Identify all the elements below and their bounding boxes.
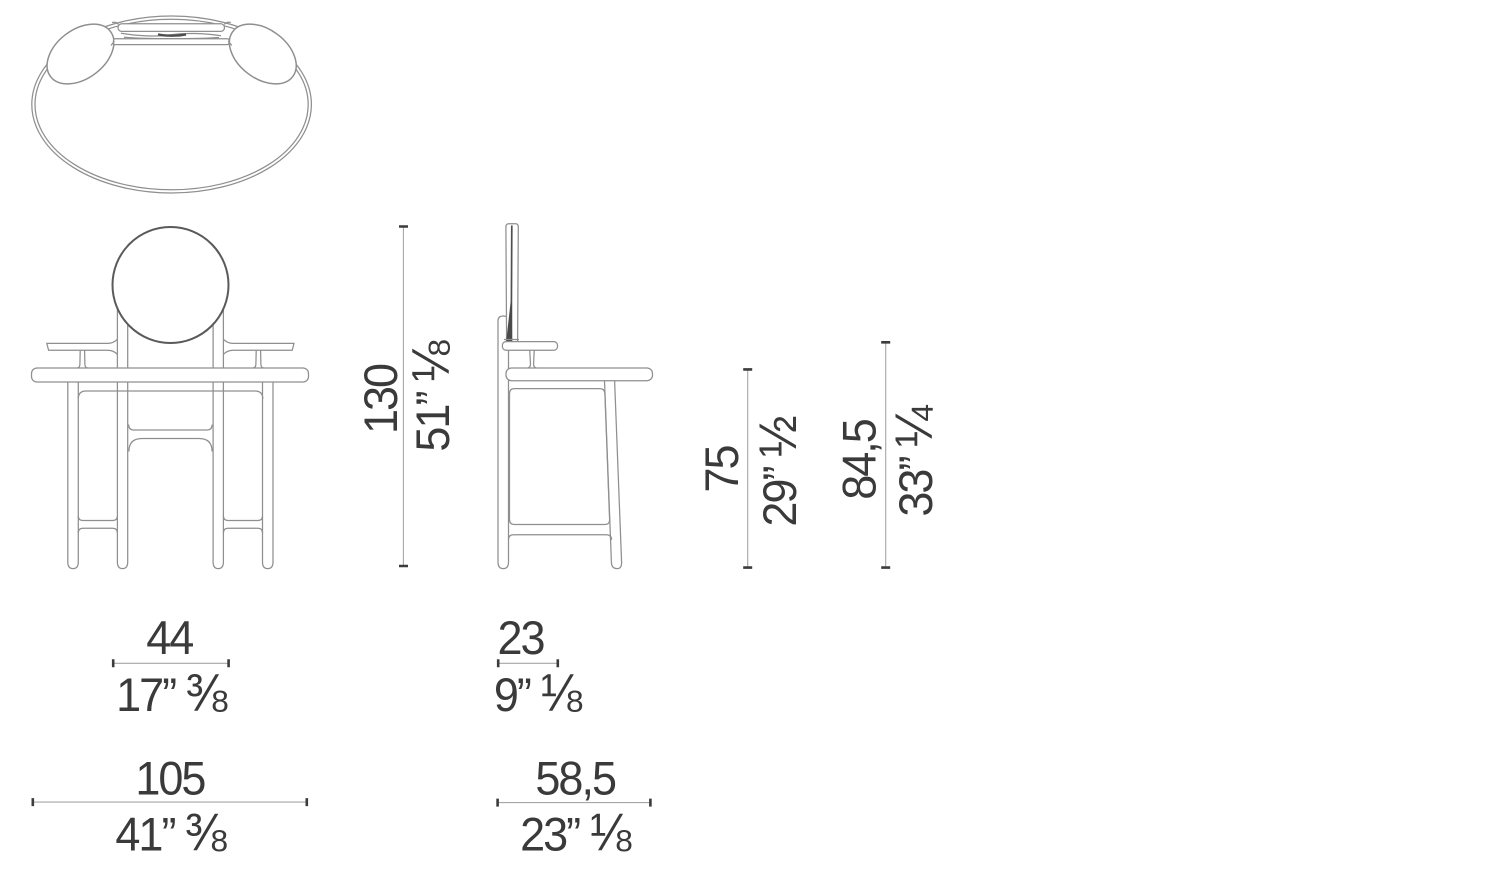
svg-text:44: 44 <box>146 611 193 664</box>
svg-text:58,5: 58,5 <box>535 751 615 804</box>
svg-text:51” ⅛: 51” ⅛ <box>401 339 461 451</box>
svg-text:17” ⅜: 17” ⅜ <box>116 663 228 723</box>
svg-text:84,5: 84,5 <box>832 420 885 500</box>
svg-text:23: 23 <box>497 611 543 664</box>
svg-text:33” ¼: 33” ¼ <box>884 404 944 516</box>
svg-text:75: 75 <box>695 446 748 492</box>
svg-text:29” ½: 29” ½ <box>748 415 808 526</box>
svg-text:41” ⅜: 41” ⅜ <box>115 802 227 862</box>
svg-text:105: 105 <box>135 751 204 804</box>
svg-text:130: 130 <box>354 365 407 434</box>
svg-text:9” ⅛: 9” ⅛ <box>494 663 583 723</box>
svg-text:23” ⅛: 23” ⅛ <box>520 802 632 862</box>
